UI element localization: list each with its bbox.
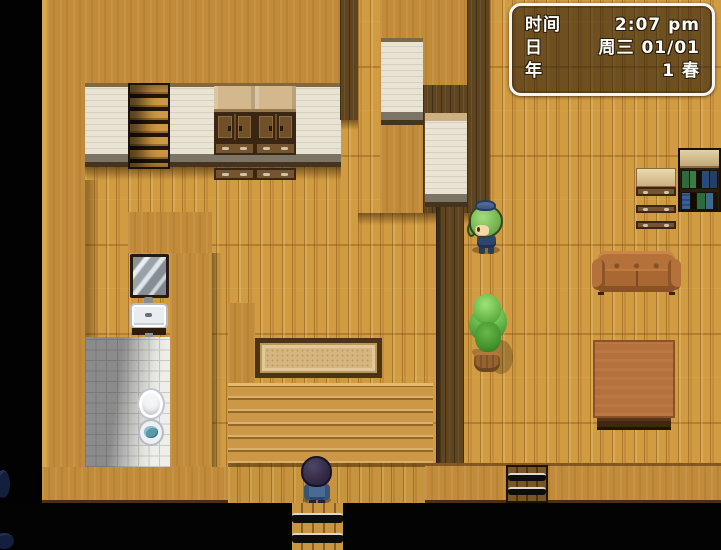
book: [710, 171, 717, 188]
wall-panel-center-lower: [425, 113, 467, 207]
drawer-handle: [643, 208, 648, 211]
hud-year-value: 1 春: [662, 60, 700, 83]
wardrobe-left: [214, 86, 255, 167]
hud-day-label: 日: [525, 37, 543, 60]
bookshelf-row: [681, 170, 718, 189]
wall-panel-center-upper: [381, 38, 423, 125]
dresser-top: [636, 168, 676, 187]
time-date-hud: 时间 2:07 pm 日 周三 01/01 年 1 春: [509, 3, 715, 96]
map-edge-void: [0, 503, 721, 550]
door-knob: [280, 126, 283, 131]
couch: [592, 251, 681, 295]
wardrobe-door: [216, 114, 234, 140]
book: [706, 193, 713, 209]
ladder-rung: [292, 513, 343, 523]
wardrobe-drawer: [255, 142, 296, 155]
book: [702, 171, 709, 188]
wardrobe-doors: [214, 112, 255, 142]
plant-foliage: [475, 322, 501, 352]
character-cap: [475, 200, 496, 211]
toilet-water: [144, 426, 158, 438]
wardrobe-door: [236, 114, 254, 140]
wall-west: [42, 0, 85, 504]
dresser-drawer: [636, 187, 676, 196]
wardrobe-top: [214, 86, 255, 112]
book: [697, 193, 705, 209]
drawer-handle: [643, 191, 648, 194]
potted-plant: [463, 294, 513, 380]
book: [691, 193, 696, 209]
hud-time-label: 时间: [525, 14, 561, 37]
couch-base: [598, 286, 675, 292]
drawer-handle: [240, 147, 247, 150]
couch-seam: [636, 271, 638, 287]
drawer-handle: [263, 173, 270, 176]
couch-foot: [669, 292, 675, 295]
step-shelf: [128, 83, 170, 169]
book: [682, 193, 690, 209]
drawer-handle: [664, 224, 669, 227]
book: [690, 171, 696, 188]
drawer-handle: [263, 147, 270, 150]
wardrobe-door: [257, 114, 275, 140]
wall-bottom-left: [42, 467, 228, 504]
bathroom-sink: [129, 297, 169, 337]
book: [682, 171, 689, 188]
sink-drain: [145, 313, 152, 317]
table: [593, 340, 675, 431]
wall-bathroom-top: [128, 212, 212, 253]
wall-panel-bedroom: [85, 83, 341, 167]
wardrobe-drawer: [214, 168, 255, 180]
hud-year-row: 年 1 春: [525, 60, 700, 83]
dresser-drawer: [636, 205, 676, 213]
ladder-rung: [292, 533, 343, 543]
wardrobe-right: [255, 86, 296, 167]
door-knob: [269, 126, 272, 131]
wall-shadow: [212, 253, 222, 467]
toilet-bowl: [138, 419, 164, 446]
ladder-down-center[interactable]: [292, 503, 343, 550]
plant-pot: [474, 352, 500, 372]
wall-shadow: [85, 180, 99, 337]
hud-day-row: 日 周三 01/01: [525, 37, 700, 60]
wardrobe-drawer: [255, 168, 296, 180]
wardrobe-drawer: [214, 142, 255, 155]
void-decoration: [0, 470, 10, 498]
plant-foliage: [473, 294, 501, 324]
wardrobe-top: [255, 86, 296, 112]
ladder-down-right[interactable]: [506, 465, 548, 503]
wall-bottom-right: [425, 463, 721, 504]
furniture-shadow: [85, 167, 341, 180]
book: [697, 171, 702, 188]
table-top: [593, 340, 675, 418]
hud-day-value: 周三 01/01: [599, 37, 700, 60]
wall-hall-west: [228, 303, 255, 383]
character-hair: [301, 456, 332, 487]
drawer-handle: [664, 191, 669, 194]
toilet-lid: [137, 388, 165, 420]
porch-deck: [228, 383, 433, 463]
wall-divider-lower: [436, 207, 464, 463]
drawer-handle: [222, 147, 229, 150]
hud-time-value: 2:07 pm: [615, 14, 700, 37]
bookshelf-row: [681, 192, 718, 210]
character-eye: [477, 227, 480, 232]
wardrobe-door: [277, 114, 295, 140]
dresser: [636, 168, 676, 212]
drawer-handle: [222, 173, 229, 176]
wall-shadow: [340, 120, 358, 130]
door-knob: [239, 126, 242, 131]
hud-year-label: 年: [525, 60, 543, 83]
couch-foot: [598, 292, 604, 295]
dresser-drawer: [636, 221, 676, 229]
drawer-handle: [664, 208, 669, 211]
drawer-handle: [281, 147, 288, 150]
bathroom-mirror: [130, 254, 169, 298]
player-character[interactable]: [466, 200, 506, 256]
table-base: [597, 418, 671, 430]
bookshelf: [678, 148, 721, 212]
game-viewport[interactable]: 时间 2:07 pm 日 周三 01/01 年 1 春: [0, 0, 721, 550]
bookshelf-top: [680, 150, 719, 168]
wardrobe-doors: [255, 112, 296, 142]
ladder-rung: [508, 473, 546, 481]
drawer-handle: [240, 173, 247, 176]
sink-pipe: [145, 333, 153, 337]
npc-character[interactable]: [300, 456, 334, 504]
wall-bedroom-top: [85, 0, 341, 84]
ladder-rung: [508, 487, 546, 495]
door-knob: [228, 126, 231, 131]
floor-rug: [255, 338, 382, 378]
wall-divider-left: [340, 0, 358, 120]
drawer-handle: [643, 224, 648, 227]
wall-bathroom-right: [170, 253, 212, 467]
wall-divider-center: [467, 0, 490, 213]
drawer-handle: [281, 173, 288, 176]
hud-time-row: 时间 2:07 pm: [525, 14, 700, 37]
